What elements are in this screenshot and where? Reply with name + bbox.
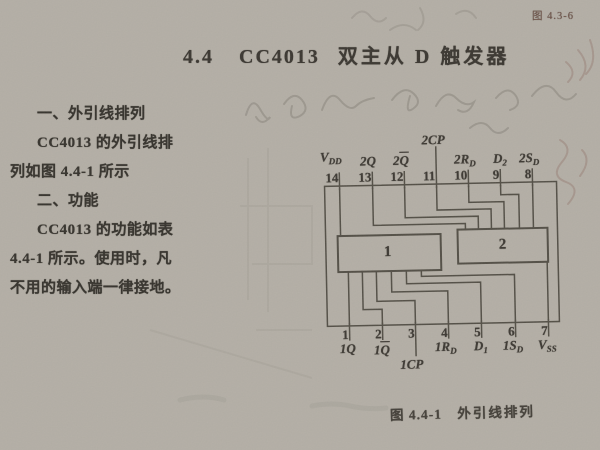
figure-caption-text: 外引线排列 (457, 404, 535, 421)
pin-label-1rd: 1RD (435, 339, 457, 356)
pin-label-2sd: 2SD (519, 150, 540, 167)
flipflop-1-label: 1 (384, 244, 392, 261)
pin-label-2rd: 2RD (454, 151, 476, 168)
pin-label-vss: VSS (538, 337, 557, 354)
pin-label-1sd: 1SD (503, 337, 524, 354)
pin-number: 11 (419, 168, 435, 184)
pin-number: 13 (355, 169, 371, 185)
pin-label-2qbar: 2Q (393, 153, 409, 169)
figure-number: 图 4.4-1 (390, 407, 442, 423)
pin-number: 3 (398, 326, 414, 342)
flipflop-2-label: 2 (499, 237, 507, 254)
pin-number: 2 (365, 326, 381, 342)
pin-number: 8 (515, 166, 531, 182)
pin-label-1qbar: 1Q (374, 342, 390, 358)
figure-caption: 图 4.4-1 外引线排列 (390, 400, 535, 424)
scanned-book-page: 图 4.3-6 4.4 CC4013 双主从 D 触发器 一、外引线排列 CC4… (0, 0, 600, 450)
pin-label-d2: D2 (493, 151, 507, 168)
pinout-diagram: 1 2 14 13 12 11 10 9 8 VDD 2Q 2Q 2CP 2RD… (0, 0, 600, 450)
pin-number: 12 (387, 169, 403, 185)
pin-label-2q: 2Q (360, 153, 376, 169)
pin-label-2cp: 2CP (421, 132, 444, 148)
pin-number: 9 (483, 167, 499, 183)
pin-label-vdd: VDD (320, 149, 342, 166)
pin-number: 10 (451, 167, 467, 183)
pin-label-1q: 1Q (340, 341, 356, 357)
pin-label-1cp: 1CP (400, 356, 423, 372)
pinout-schematic-lines (0, 0, 600, 450)
pin-number: 14 (322, 170, 338, 186)
pin-label-d1: D1 (474, 338, 488, 355)
